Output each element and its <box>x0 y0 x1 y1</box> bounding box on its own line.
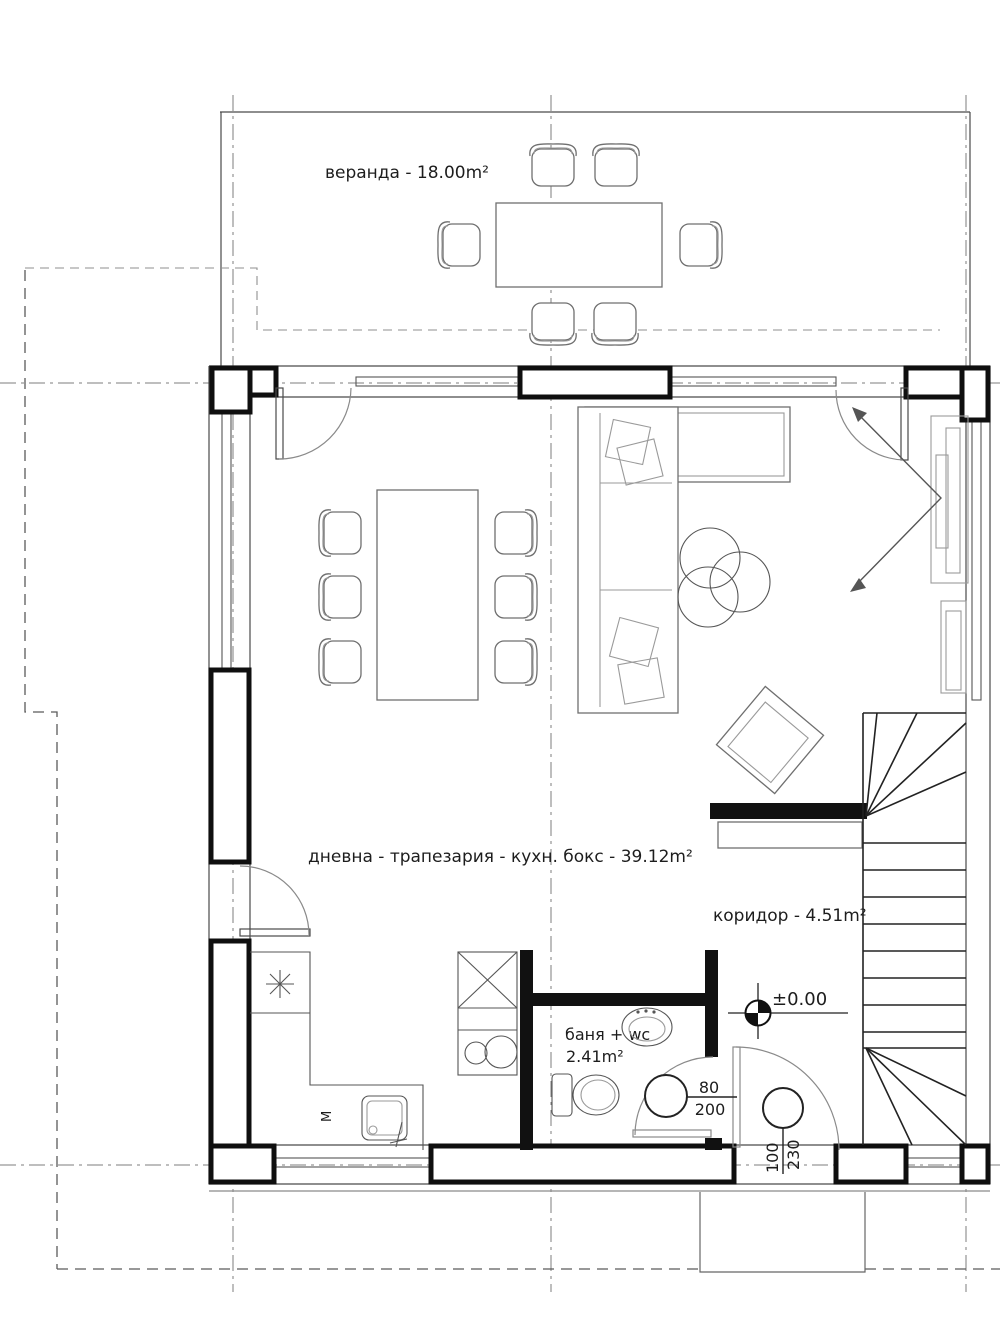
wall-pier <box>211 1146 274 1182</box>
corridor-wall <box>710 803 867 819</box>
radiator-icon <box>946 611 961 690</box>
terrace-door <box>276 388 351 459</box>
table-icon <box>377 490 478 700</box>
kitchen: M <box>250 952 517 1150</box>
chair-icon <box>680 222 722 268</box>
wall-pier <box>520 368 670 397</box>
toilet-icon <box>552 1074 619 1116</box>
washer-label: M <box>320 1111 335 1122</box>
window-icon <box>670 377 836 386</box>
entry-porch <box>700 1192 865 1272</box>
wall-pier <box>962 1146 988 1182</box>
sofa-icon <box>578 407 678 713</box>
chair-icon <box>592 303 638 345</box>
staircase <box>863 713 966 1145</box>
chair-icon <box>530 303 576 345</box>
window-icon <box>222 413 231 670</box>
radiator-icon <box>941 601 966 693</box>
bathroom-area: 2.41m² <box>566 1047 624 1066</box>
veranda-open-edge <box>25 268 940 330</box>
level-value: ±0.00 <box>772 989 827 1010</box>
chair-icon <box>319 510 361 556</box>
floor-plan: веранда - 18.00m² <box>0 0 1000 1318</box>
wall-pier <box>431 1146 734 1182</box>
window-icon <box>972 420 981 700</box>
chair-icon <box>495 639 537 685</box>
wall-pier <box>211 941 249 1148</box>
radiators <box>931 416 968 693</box>
wall-pier <box>962 368 988 420</box>
armchair-icon <box>716 686 823 793</box>
balcony-door <box>836 388 908 460</box>
bathroom-label: баня + wc <box>565 1025 650 1044</box>
table-icon <box>496 203 662 287</box>
wall-pier <box>212 368 250 412</box>
roof-overhang-outline <box>25 270 1000 1269</box>
living-room-furniture: дневна - трапезария - кухн. бокс - 39.12… <box>308 407 824 867</box>
bath-door-width: 80 <box>699 1078 719 1097</box>
chair-icon <box>530 144 576 186</box>
bath-door-height: 200 <box>695 1100 726 1119</box>
level-symbol-icon <box>758 1001 771 1014</box>
chair-icon <box>438 222 480 268</box>
chair-icon <box>319 574 361 620</box>
kitchen-sink-icon <box>362 1096 407 1147</box>
bathroom-wall-right <box>705 950 718 1057</box>
entry-door-width: 100 <box>763 1142 782 1173</box>
living-room-label: дневна - трапезария - кухн. бокс - 39.12… <box>308 847 693 867</box>
entry-door-height: 230 <box>784 1139 803 1170</box>
floor-plan-sheet: веранда - 18.00m² <box>0 0 1000 1318</box>
chair-icon <box>319 639 361 685</box>
bathroom-wall-left <box>520 950 533 1150</box>
chair-icon <box>495 510 537 556</box>
corridor: коридор - 4.51m² ±0.00 <box>713 906 867 1039</box>
entry-direction-arrow <box>850 407 941 592</box>
corridor-label: коридор - 4.51m² <box>713 906 867 926</box>
kitchen-unit <box>458 952 517 1075</box>
corridor-cabinet <box>718 822 862 848</box>
veranda-label: веранда - 18.00m² <box>325 163 489 183</box>
veranda: веранда - 18.00m² <box>25 112 970 368</box>
burner-icon <box>465 1042 487 1064</box>
window-icon <box>261 1158 431 1167</box>
coffee-table-icon <box>678 528 770 627</box>
level-mark: ±0.00 <box>728 983 848 1039</box>
dining-set <box>319 490 537 700</box>
bathroom-wall-top <box>533 993 705 1006</box>
wall-pier <box>211 670 249 862</box>
chair-icon <box>593 144 639 186</box>
window-icon <box>356 377 518 386</box>
appliance-asterisk-icon <box>266 970 294 998</box>
chair-icon <box>495 574 537 620</box>
window-icon <box>906 1158 962 1167</box>
burner-icon <box>485 1036 517 1068</box>
wall-pier <box>836 1146 906 1182</box>
door-jamb <box>705 1138 722 1150</box>
